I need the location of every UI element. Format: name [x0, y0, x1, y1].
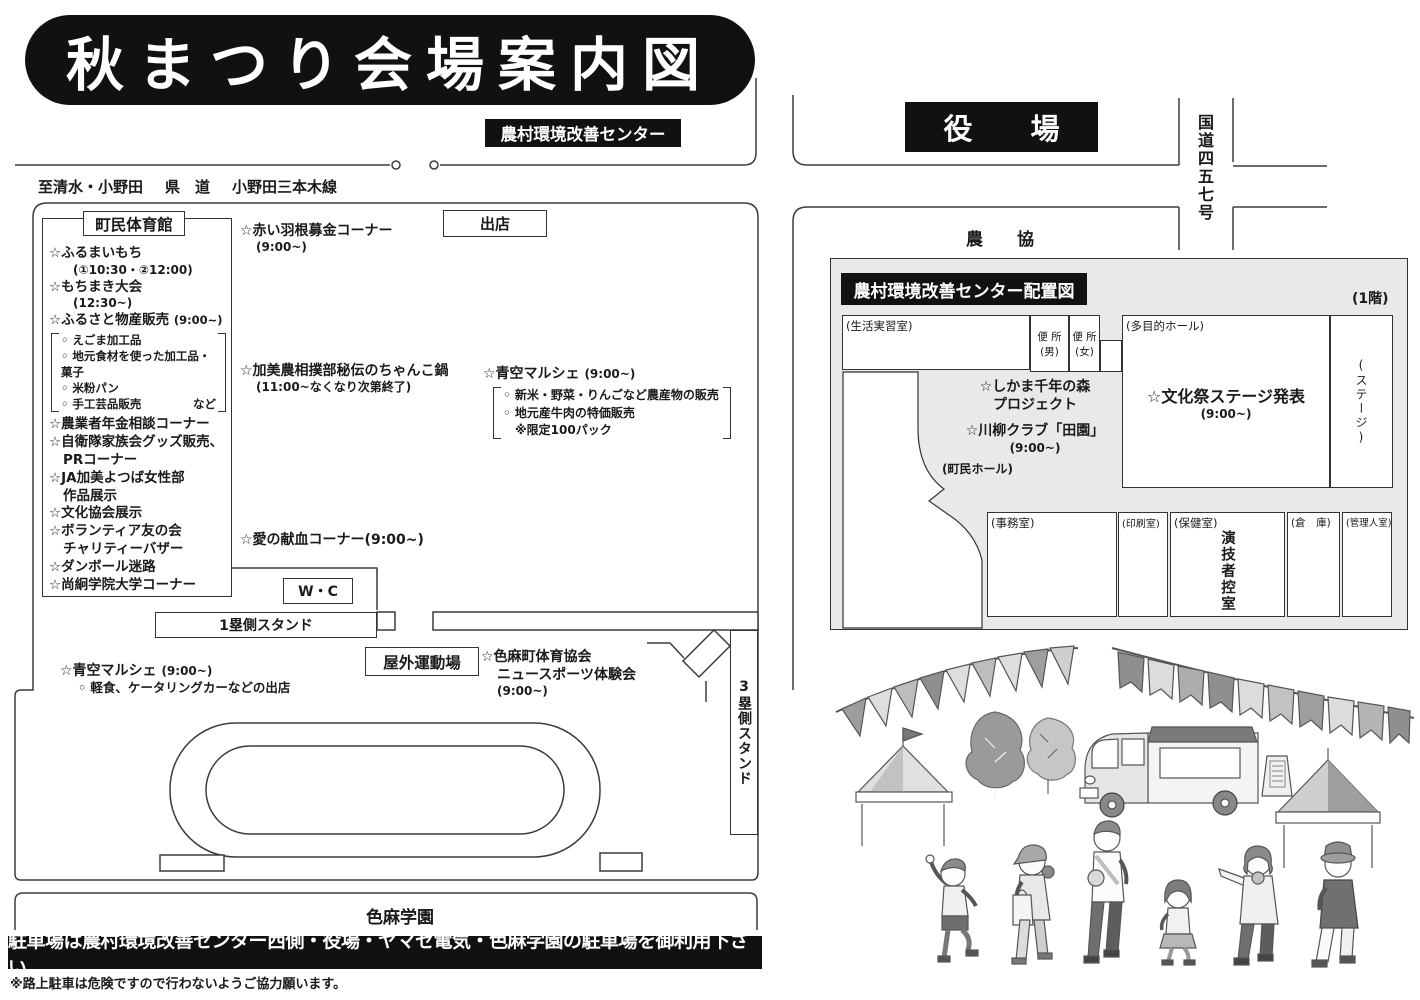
event-shikama-cont: プロジェクト — [955, 396, 1115, 414]
man-hat-icon — [1312, 842, 1358, 967]
room-hikae-label: 演技者控室 — [1171, 527, 1284, 616]
gym-item: ☆農業者年金相談コーナー — [49, 416, 226, 434]
food-truck-icon — [1080, 727, 1258, 817]
event-senryu-time: (9:00~) — [955, 441, 1115, 457]
gym-item: ☆自衛隊家族会グッズ販売、 — [49, 434, 226, 452]
parking-note: ※路上駐車は危険ですので行わないようご協力願います。 — [10, 973, 346, 992]
gym-item: ☆ふるまいもち — [49, 245, 226, 263]
gym-title-box: 町民体育館 — [83, 211, 185, 236]
woman-cap-icon — [1012, 845, 1054, 964]
marche-subitem: ※限定100パック — [503, 422, 721, 439]
route457-label: 国道四五七号 — [1186, 114, 1222, 238]
gym-item: ☆ダンボール迷路 — [49, 559, 226, 577]
tree-icons — [966, 712, 1075, 800]
gym-item: ☆ボランティア友の会 — [49, 523, 226, 541]
spot-newsports: ☆色麻町体育協会 ニュースポーツ体験会 (9:00~) — [481, 648, 636, 700]
stand-third-base: 3塁側スタンド — [730, 630, 758, 835]
gym-item-time: (①10:30・②12:00) — [49, 263, 226, 279]
room-hall: (多目的ホール) ☆文化祭ステージ発表 (9:00~) — [1122, 315, 1330, 488]
page-title: 秋まつり会場案内図 — [25, 15, 755, 105]
gym-subitem: ◦ 米粉パン — [61, 381, 216, 397]
spot-marche2: ☆青空マルシェ (9:00~) ◦ 軽食、ケータリングカーなどの出店 — [60, 662, 290, 696]
room-seikatsu: (生活実習室) — [842, 315, 1030, 370]
gym-item-cont: 作品展示 — [49, 488, 226, 506]
school-label: 色麻学園 — [300, 903, 500, 928]
stand-first-base: 1塁側スタンド — [155, 612, 377, 638]
road-kind-label: 県 道 — [165, 176, 210, 197]
room-insatsu: (印刷室) — [1118, 512, 1168, 617]
gym-item: ☆もちまき大会 — [49, 279, 226, 297]
event-shikama: ☆しかま千年の森 — [955, 378, 1115, 396]
event-senryu: ☆川柳クラブ「田園」 — [955, 422, 1115, 440]
woman-pointing-icon — [1219, 846, 1278, 965]
prefroad-label-row: 至清水・小野田 県 道 小野田三本木線 — [38, 176, 337, 197]
parking-banner: 駐車場は農村環境改善センター西側・役場・ヤマセ電気・色麻学園の駐車場を御利用下さ… — [8, 936, 762, 969]
boy-running-icon — [926, 855, 978, 962]
center-building-label: 農村環境改善センター — [485, 119, 681, 147]
gym-item: ☆尚絅学院大学コーナー — [49, 577, 226, 595]
layout-title: 農村環境改善センター配置図 — [841, 273, 1087, 305]
tent-left-icon — [856, 728, 952, 846]
room-toilet-men: 便 所(男) — [1030, 315, 1069, 372]
spot-marche: ☆青空マルシェ (9:00~) ◦ 新米・野菜・りんごなど農産物の販売 ◦ 地元… — [483, 365, 731, 441]
floor-label: (1階) — [1352, 288, 1389, 308]
outdoor-field-box: 屋外運動場 — [365, 647, 479, 676]
marche-subitem: ◦ 新米・野菜・りんごなど農産物の販売 — [503, 387, 721, 404]
track-inner — [206, 746, 564, 834]
gym-subitem: ◦ えごま加工品 — [61, 333, 216, 349]
gym-subitem: ◦ 手工芸品販売など — [61, 397, 216, 413]
room-kanri: (管理人室) — [1342, 512, 1392, 617]
townhall-label: 役 場 — [905, 102, 1098, 152]
gym-sublist: ◦ えごま加工品 ◦ 地元食材を使った加工品・菓子 ◦ 米粉パン ◦ 手工芸品販… — [51, 331, 226, 414]
stalls-box: 出店 — [443, 210, 547, 237]
room-toilet-women: 便 所(女) — [1069, 315, 1100, 372]
track-outer — [170, 723, 600, 857]
spot-chanko: ☆加美農相撲部秘伝のちゃんこ鍋 (11:00~なくなり次第終了) — [240, 362, 449, 396]
room-stage: (ステージ) — [1330, 315, 1393, 488]
event-bunkasai-time: (9:00~) — [1201, 407, 1252, 421]
spot-akaihane: ☆赤い羽根募金コーナー (9:00~) — [240, 222, 393, 256]
gym-item: ☆JA加美よつば女性部 — [49, 470, 226, 488]
room-chomin-label: (町民ホール) — [942, 460, 1013, 477]
gym-item: ☆ふるさと物産販売 (9:00~) — [49, 312, 226, 330]
room-jimu: (事務室) — [987, 512, 1117, 617]
gym-item-time: (12:30~) — [49, 296, 226, 312]
gate-path — [647, 643, 684, 658]
room-souko: (倉 庫) — [1287, 512, 1340, 617]
gym-event-list: 町民体育館 ☆ふるまいもち (①10:30・②12:00) ☆もちまき大会 (1… — [42, 218, 232, 597]
room-hoken: (保健室) 演技者控室 — [1170, 512, 1285, 617]
spot-kenketsu: ☆愛の献血コーナー(9:00~) — [240, 531, 424, 549]
wc-box: W・C — [283, 578, 353, 604]
girl-icon — [1160, 880, 1196, 965]
room-step — [1100, 340, 1122, 372]
marche-subitem: ◦ 地元産牛肉の特価販売 — [503, 405, 721, 422]
event-shikama-block: ☆しかま千年の森 プロジェクト ☆川柳クラブ「田園」 (9:00~) — [955, 378, 1115, 456]
gym-item-cont: チャリティーバザー — [49, 541, 226, 559]
gate-ramp — [683, 630, 730, 677]
man-bag-icon — [1084, 821, 1126, 963]
road-destination-label: 至清水・小野田 — [38, 176, 143, 197]
menu-board-icon — [1262, 756, 1292, 796]
gym-subitem: ◦ 地元食材を使った加工品・菓子 — [61, 349, 216, 381]
road-name-label: 小野田三本木線 — [232, 176, 337, 197]
gym-item: ☆文化協会展示 — [49, 505, 226, 523]
gym-item-cont: PRコーナー — [49, 452, 226, 470]
marche-sublist: ◦ 新米・野菜・りんごなど農産物の販売 ◦ 地元産牛肉の特価販売 ※限定100パ… — [493, 385, 731, 441]
event-bunkasai: ☆文化祭ステージ発表 — [1147, 383, 1305, 407]
ja-coop-label: 農 協 — [925, 225, 1075, 250]
festival-illustration — [836, 646, 1414, 967]
